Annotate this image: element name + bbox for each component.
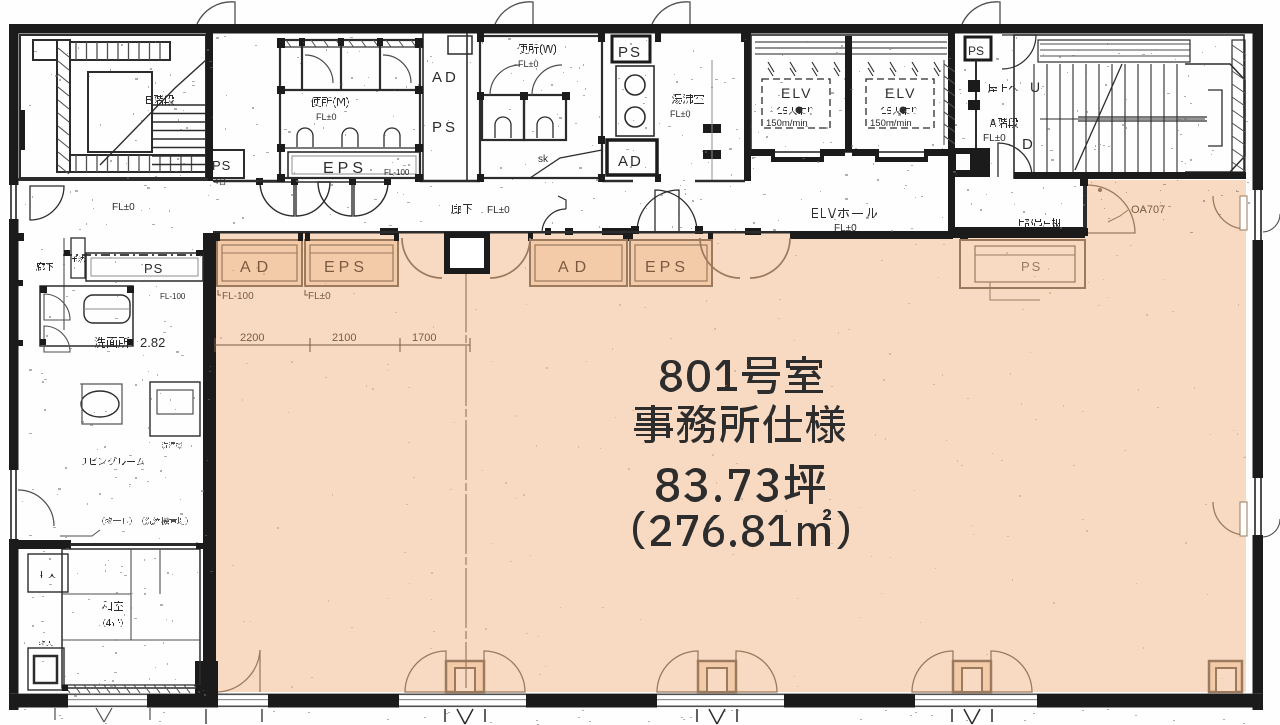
svg-text:AD: AD xyxy=(558,259,592,276)
svg-text:EPS: EPS xyxy=(645,259,689,276)
svg-text:PS: PS xyxy=(1021,259,1042,274)
svg-text:EPS: EPS xyxy=(324,259,368,276)
svg-text:FL±0: FL±0 xyxy=(518,59,538,69)
svg-text:ELV: ELV xyxy=(885,85,916,101)
svg-text:AD: AD xyxy=(432,69,459,86)
svg-text:D: D xyxy=(1022,136,1033,153)
svg-text:1700: 1700 xyxy=(412,332,436,344)
svg-text:FL±0: FL±0 xyxy=(308,291,331,302)
svg-text:FL±0: FL±0 xyxy=(487,205,510,216)
svg-text:2200: 2200 xyxy=(240,332,264,344)
svg-text:FL±0: FL±0 xyxy=(112,202,135,213)
svg-text:PS: PS xyxy=(212,158,231,173)
svg-text:sk: sk xyxy=(538,154,549,165)
svg-text:PS: PS xyxy=(432,119,458,136)
svg-text:FL-100: FL-100 xyxy=(222,291,254,302)
svg-text:FL-100: FL-100 xyxy=(384,168,410,177)
svg-text:150m/min: 150m/min xyxy=(766,118,808,129)
svg-text:2.82: 2.82 xyxy=(140,335,165,350)
svg-text:PS: PS xyxy=(618,44,642,61)
svg-text:FL±0: FL±0 xyxy=(316,112,336,122)
svg-text:2100: 2100 xyxy=(332,332,356,344)
svg-text:ELV: ELV xyxy=(781,85,812,101)
svg-text:EPS: EPS xyxy=(323,160,367,177)
svg-text:OA707: OA707 xyxy=(1131,204,1165,216)
svg-text:FL±0: FL±0 xyxy=(670,109,690,119)
svg-text:FL-100: FL-100 xyxy=(160,292,186,301)
svg-text:150m/min: 150m/min xyxy=(870,118,912,129)
svg-text:U: U xyxy=(1030,79,1040,95)
svg-text:FL±0: FL±0 xyxy=(983,133,1006,144)
svg-text:PS: PS xyxy=(144,261,163,276)
